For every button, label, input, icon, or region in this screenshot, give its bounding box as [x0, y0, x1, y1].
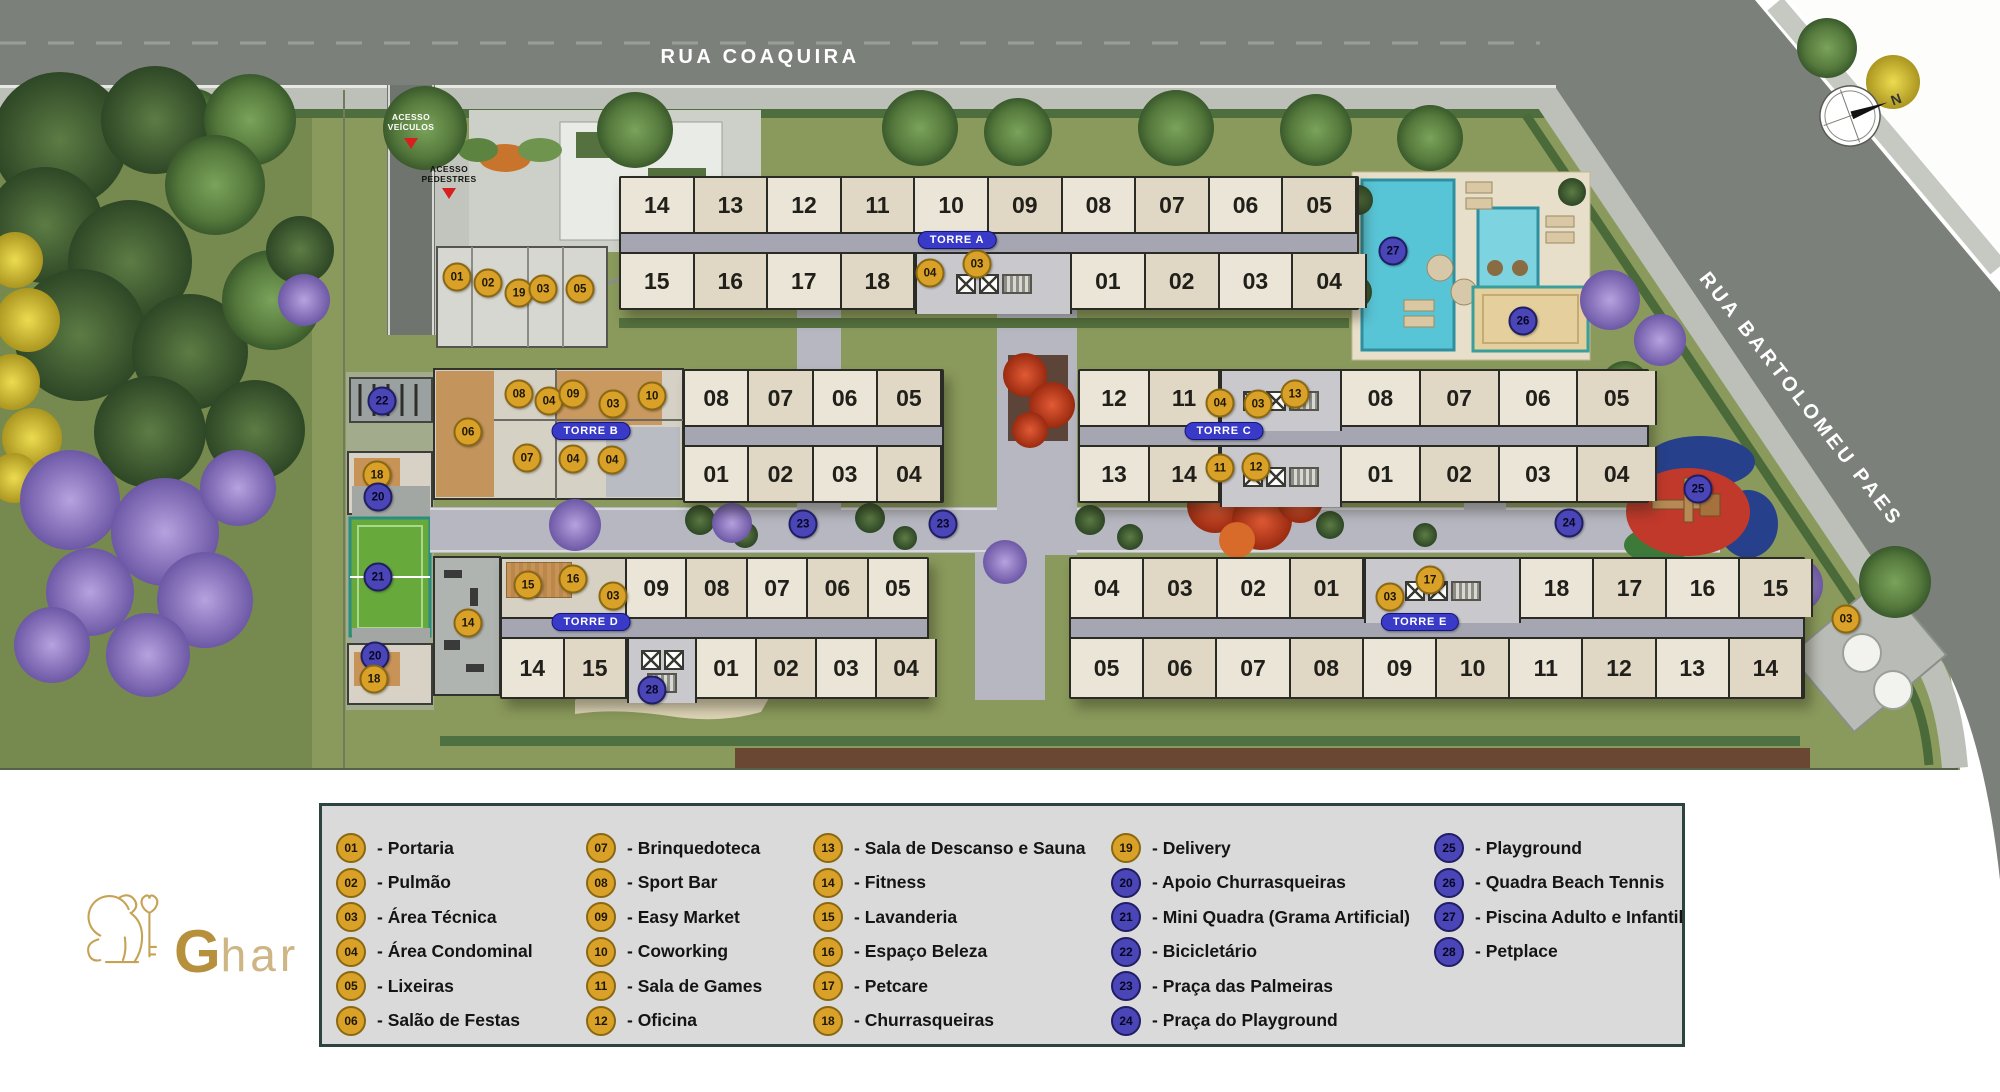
- unit-cell-c-08: 08: [1342, 371, 1421, 425]
- plan-marker-04: 04: [916, 259, 945, 288]
- unit-cell-b-08: 08: [685, 371, 749, 425]
- legend-label: - Mini Quadra (Grama Artificial): [1152, 907, 1410, 928]
- legend-label: - Sport Bar: [627, 872, 717, 893]
- legend-label: - Oficina: [627, 1010, 697, 1031]
- tower-core: [1220, 447, 1342, 507]
- legend-label: - Petplace: [1475, 941, 1558, 962]
- unit-cell-d-14: 14: [502, 639, 565, 697]
- legend-label: - Sala de Descanso e Sauna: [854, 838, 1086, 859]
- unit-row-segment: 0908070605: [627, 559, 929, 617]
- unit-cell-d-05: 05: [869, 559, 929, 617]
- unit-cell-d-03: 03: [817, 639, 877, 697]
- unit-cell-d-02: 02: [757, 639, 817, 697]
- plan-marker-03: 03: [1832, 605, 1861, 634]
- plan-marker-03: 03: [1244, 390, 1273, 419]
- legend-item-19: 19- Delivery: [1111, 831, 1410, 866]
- legend-marker-24: 24: [1111, 1006, 1141, 1036]
- unit-cell-e-17: 17: [1594, 559, 1667, 617]
- legend-label: - Playground: [1475, 838, 1582, 859]
- unit-cell-d-06: 06: [808, 559, 868, 617]
- legend-marker-07: 07: [586, 833, 616, 863]
- unit-cell-e-18: 18: [1521, 559, 1594, 617]
- unit-row-segment: 04030201: [1071, 559, 1364, 617]
- unit-cell-a-11: 11: [842, 178, 916, 232]
- legend: 01- Portaria02- Pulmão03- Área Técnica04…: [319, 803, 1685, 1047]
- unit-cell-b-01: 01: [685, 447, 749, 501]
- access-vehicles-label: ACESSO VEÍCULOS: [380, 112, 442, 132]
- unit-cell-e-12: 12: [1583, 639, 1656, 697]
- legend-label: - Bicicletário: [1152, 941, 1257, 962]
- unit-cell-e-07: 07: [1217, 639, 1290, 697]
- unit-cell-c-06: 06: [1500, 371, 1579, 425]
- legend-item-22: 22- Bicicletário: [1111, 935, 1410, 970]
- unit-row-segment: 15161718: [621, 254, 915, 308]
- legend-item-21: 21- Mini Quadra (Grama Artificial): [1111, 900, 1410, 935]
- legend-column: 07- Brinquedoteca08- Sport Bar09- Easy M…: [586, 831, 762, 1038]
- unit-cell-a-16: 16: [695, 254, 769, 308]
- unit-cell-e-01: 01: [1291, 559, 1364, 617]
- unit-cell-a-10: 10: [915, 178, 989, 232]
- legend-column: 13- Sala de Descanso e Sauna14- Fitness1…: [813, 831, 1086, 1038]
- tower-label-pill-d: TORRE D: [552, 613, 631, 631]
- logo-text: har: [221, 935, 299, 976]
- legend-label: - Delivery: [1152, 838, 1231, 859]
- lion-logo-icon: [70, 880, 174, 976]
- legend-item-05: 05- Lixeiras: [336, 969, 533, 1004]
- legend-label: - Coworking: [627, 941, 728, 962]
- legend-item-20: 20- Apoio Churrasqueiras: [1111, 866, 1410, 901]
- unit-cell-a-13: 13: [695, 178, 769, 232]
- legend-item-11: 11- Sala de Games: [586, 969, 762, 1004]
- unit-cell-e-11: 11: [1510, 639, 1583, 697]
- plan-marker-15: 15: [514, 571, 543, 600]
- unit-row-segment: 01020304: [697, 639, 937, 697]
- unit-cell-e-14: 14: [1730, 639, 1803, 697]
- unit-cell-a-06: 06: [1210, 178, 1284, 232]
- unit-cell-d-09: 09: [627, 559, 687, 617]
- legend-marker-09: 09: [586, 902, 616, 932]
- tower-c: 121108070605131401020304: [1078, 369, 1649, 503]
- legend-column: 25- Playground26- Quadra Beach Tennis27-…: [1434, 831, 1683, 969]
- plan-marker-10: 10: [638, 382, 667, 411]
- unit-cell-b-04: 04: [878, 447, 942, 501]
- plan-marker-21: 21: [364, 563, 393, 592]
- unit-cell-e-04: 04: [1071, 559, 1144, 617]
- legend-item-07: 07- Brinquedoteca: [586, 831, 762, 866]
- legend-marker-13: 13: [813, 833, 843, 863]
- unit-cell-c-03: 03: [1500, 447, 1579, 501]
- unit-cell-a-02: 02: [1146, 254, 1220, 308]
- legend-label: - Apoio Churrasqueiras: [1152, 872, 1346, 893]
- legend-item-15: 15- Lavanderia: [813, 900, 1086, 935]
- access-pedestrians-arrow-icon: [442, 188, 456, 199]
- plan-marker-24: 24: [1555, 509, 1584, 538]
- plan-marker-14: 14: [454, 609, 483, 638]
- legend-label: - Área Condominal: [377, 941, 533, 962]
- legend-marker-23: 23: [1111, 971, 1141, 1001]
- legend-marker-14: 14: [813, 868, 843, 898]
- legend-label: - Sala de Games: [627, 976, 762, 997]
- legend-item-16: 16- Espaço Beleza: [813, 935, 1086, 970]
- unit-cell-e-08: 08: [1291, 639, 1364, 697]
- unit-cell-e-09: 09: [1364, 639, 1437, 697]
- legend-item-26: 26- Quadra Beach Tennis: [1434, 866, 1683, 901]
- unit-cell-e-10: 10: [1437, 639, 1510, 697]
- plan-marker-11: 11: [1206, 454, 1235, 483]
- legend-item-14: 14- Fitness: [813, 866, 1086, 901]
- unit-cell-b-06: 06: [814, 371, 878, 425]
- unit-row-segment: 01020304: [1072, 254, 1367, 308]
- legend-column: 01- Portaria02- Pulmão03- Área Técnica04…: [336, 831, 533, 1038]
- legend-label: - Easy Market: [627, 907, 740, 928]
- legend-column: 19- Delivery20- Apoio Churrasqueiras21- …: [1111, 831, 1410, 1038]
- plan-marker-23: 23: [789, 510, 818, 539]
- access-vehicles-arrow-icon: [404, 138, 418, 149]
- unit-row-segment: 1415: [502, 639, 627, 697]
- plan-marker-03: 03: [599, 582, 628, 611]
- unit-cell-b-07: 07: [749, 371, 813, 425]
- access-pedestrians-label: ACESSO PEDESTRES: [420, 164, 478, 184]
- unit-cell-a-14: 14: [621, 178, 695, 232]
- unit-cell-e-03: 03: [1144, 559, 1217, 617]
- legend-label: - Praça do Playground: [1152, 1010, 1338, 1031]
- tower-corridor: [685, 425, 942, 447]
- legend-label: - Brinquedoteca: [627, 838, 760, 859]
- unit-cell-a-12: 12: [768, 178, 842, 232]
- unit-cell-b-05: 05: [878, 371, 942, 425]
- legend-marker-11: 11: [586, 971, 616, 1001]
- plan-marker-27: 27: [1379, 237, 1408, 266]
- legend-marker-18: 18: [813, 1006, 843, 1036]
- legend-label: - Pulmão: [377, 872, 451, 893]
- unit-cell-a-17: 17: [768, 254, 842, 308]
- tower-label-pill-a: TORRE A: [918, 231, 997, 249]
- legend-item-09: 09- Easy Market: [586, 900, 762, 935]
- legend-marker-20: 20: [1111, 868, 1141, 898]
- plan-marker-03: 03: [1376, 583, 1405, 612]
- unit-row-segment: 01020304: [685, 447, 942, 501]
- unit-cell-d-04: 04: [877, 639, 937, 697]
- plan-marker-12: 12: [1242, 453, 1271, 482]
- unit-row-segment: 14131211100908070605: [621, 178, 1357, 232]
- tower-label-pill-b: TORRE B: [552, 422, 631, 440]
- legend-marker-27: 27: [1434, 902, 1464, 932]
- unit-cell-a-18: 18: [842, 254, 916, 308]
- legend-marker-17: 17: [813, 971, 843, 1001]
- plan-marker-01: 01: [443, 263, 472, 292]
- plan-marker-22: 22: [368, 387, 397, 416]
- stairs-icon: [1451, 581, 1481, 601]
- legend-marker-22: 22: [1111, 937, 1141, 967]
- legend-label: - Fitness: [854, 872, 926, 893]
- unit-cell-d-01: 01: [697, 639, 757, 697]
- legend-item-12: 12- Oficina: [586, 1004, 762, 1039]
- unit-cell-a-03: 03: [1220, 254, 1294, 308]
- svg-text:N: N: [1889, 90, 1904, 108]
- legend-marker-15: 15: [813, 902, 843, 932]
- plan-marker-04: 04: [598, 446, 627, 475]
- plan-marker-28: 28: [638, 676, 667, 705]
- legend-item-28: 28- Petplace: [1434, 935, 1683, 970]
- plan-marker-18: 18: [360, 665, 389, 694]
- unit-cell-c-02: 02: [1421, 447, 1500, 501]
- unit-row-segment: 18171615: [1521, 559, 1813, 617]
- legend-item-03: 03- Área Técnica: [336, 900, 533, 935]
- plan-marker-07: 07: [513, 444, 542, 473]
- legend-marker-21: 21: [1111, 902, 1141, 932]
- legend-item-13: 13- Sala de Descanso e Sauna: [813, 831, 1086, 866]
- legend-item-25: 25- Playground: [1434, 831, 1683, 866]
- plan-marker-08: 08: [505, 380, 534, 409]
- legend-label: - Área Técnica: [377, 907, 497, 928]
- elevator-icon: [664, 650, 684, 670]
- unit-cell-a-05: 05: [1283, 178, 1357, 232]
- unit-cell-c-05: 05: [1578, 371, 1657, 425]
- legend-marker-28: 28: [1434, 937, 1464, 967]
- legend-label: - Quadra Beach Tennis: [1475, 872, 1664, 893]
- unit-cell-b-03: 03: [814, 447, 878, 501]
- legend-item-17: 17- Petcare: [813, 969, 1086, 1004]
- unit-cell-d-08: 08: [687, 559, 747, 617]
- legend-item-18: 18- Churrasqueiras: [813, 1004, 1086, 1039]
- unit-cell-a-15: 15: [621, 254, 695, 308]
- unit-cell-a-01: 01: [1072, 254, 1146, 308]
- street-label-top: RUA COAQUIRA: [660, 46, 860, 69]
- tower-label-pill-c: TORRE C: [1185, 422, 1264, 440]
- legend-marker-08: 08: [586, 868, 616, 898]
- unit-cell-a-04: 04: [1293, 254, 1367, 308]
- unit-cell-e-06: 06: [1144, 639, 1217, 697]
- legend-item-23: 23- Praça das Palmeiras: [1111, 969, 1410, 1004]
- legend-label: - Espaço Beleza: [854, 941, 987, 962]
- legend-item-10: 10- Coworking: [586, 935, 762, 970]
- unit-cell-a-09: 09: [989, 178, 1063, 232]
- unit-cell-c-01: 01: [1342, 447, 1421, 501]
- unit-cell-a-07: 07: [1136, 178, 1210, 232]
- plan-marker-17: 17: [1416, 566, 1445, 595]
- brand-logo: Ghar: [70, 880, 299, 976]
- legend-item-27: 27- Piscina Adulto e Infantil: [1434, 900, 1683, 935]
- plan-marker-03: 03: [599, 390, 628, 419]
- legend-label: - Salão de Festas: [377, 1010, 520, 1031]
- legend-item-06: 06- Salão de Festas: [336, 1004, 533, 1039]
- compass-icon: N: [1806, 72, 1906, 164]
- legend-marker-16: 16: [813, 937, 843, 967]
- unit-cell-a-08: 08: [1063, 178, 1137, 232]
- legend-marker-10: 10: [586, 937, 616, 967]
- legend-marker-01: 01: [336, 833, 366, 863]
- plan-marker-25: 25: [1684, 475, 1713, 504]
- plan-marker-04: 04: [1206, 389, 1235, 418]
- legend-label: - Praça das Palmeiras: [1152, 976, 1333, 997]
- legend-label: - Petcare: [854, 976, 928, 997]
- unit-cell-e-15: 15: [1740, 559, 1813, 617]
- tower-label-pill-e: TORRE E: [1381, 613, 1459, 631]
- legend-item-01: 01- Portaria: [336, 831, 533, 866]
- legend-label: - Piscina Adulto e Infantil: [1475, 907, 1683, 928]
- legend-marker-04: 04: [336, 937, 366, 967]
- legend-marker-03: 03: [336, 902, 366, 932]
- plan-marker-02: 02: [474, 269, 503, 298]
- legend-label: - Lavanderia: [854, 907, 957, 928]
- legend-label: - Churrasqueiras: [854, 1010, 994, 1031]
- unit-row-segment: 1211: [1080, 371, 1220, 425]
- plan-marker-16: 16: [559, 565, 588, 594]
- unit-cell-b-02: 02: [749, 447, 813, 501]
- stairs-icon: [1002, 274, 1032, 294]
- plan-marker-06: 06: [454, 418, 483, 447]
- unit-cell-e-13: 13: [1657, 639, 1730, 697]
- unit-cell-c-12: 12: [1080, 371, 1150, 425]
- unit-cell-e-05: 05: [1071, 639, 1144, 697]
- legend-item-04: 04- Área Condominal: [336, 935, 533, 970]
- legend-item-02: 02- Pulmão: [336, 866, 533, 901]
- unit-row-segment: 08070605: [1342, 371, 1657, 425]
- elevator-icon: [641, 650, 661, 670]
- plan-marker-23: 23: [929, 510, 958, 539]
- legend-marker-26: 26: [1434, 868, 1464, 898]
- legend-item-24: 24- Praça do Playground: [1111, 1004, 1410, 1039]
- legend-marker-02: 02: [336, 868, 366, 898]
- plan-marker-04: 04: [559, 445, 588, 474]
- unit-cell-d-15: 15: [565, 639, 628, 697]
- stairs-icon: [1289, 467, 1319, 487]
- legend-label: - Portaria: [377, 838, 454, 859]
- unit-row-segment: 05060708091011121314: [1071, 639, 1803, 697]
- unit-cell-c-07: 07: [1421, 371, 1500, 425]
- plan-marker-03: 03: [529, 275, 558, 304]
- unit-cell-e-02: 02: [1218, 559, 1291, 617]
- unit-row-segment: 01020304: [1342, 447, 1657, 501]
- legend-marker-06: 06: [336, 1006, 366, 1036]
- plan-marker-09: 09: [559, 380, 588, 409]
- legend-marker-19: 19: [1111, 833, 1141, 863]
- plan-marker-13: 13: [1281, 380, 1310, 409]
- unit-row-segment: 1314: [1080, 447, 1220, 501]
- legend-item-08: 08- Sport Bar: [586, 866, 762, 901]
- legend-marker-05: 05: [336, 971, 366, 1001]
- site-plan-canvas: RUA COAQUIRA RUA BARTOLOMEU PAES ACESSO …: [0, 0, 2000, 1092]
- plan-marker-03: 03: [963, 250, 992, 279]
- tower-corridor: [1080, 425, 1647, 447]
- plan-marker-05: 05: [566, 275, 595, 304]
- unit-cell-c-13: 13: [1080, 447, 1150, 501]
- legend-marker-12: 12: [586, 1006, 616, 1036]
- tower-b: 0807060501020304: [683, 369, 944, 503]
- logo-initial: G: [174, 928, 221, 976]
- unit-row-segment: 08070605: [685, 371, 942, 425]
- unit-cell-d-07: 07: [748, 559, 808, 617]
- plan-marker-26: 26: [1509, 307, 1538, 336]
- unit-cell-e-16: 16: [1667, 559, 1740, 617]
- plan-marker-20: 20: [364, 483, 393, 512]
- legend-marker-25: 25: [1434, 833, 1464, 863]
- unit-cell-c-04: 04: [1578, 447, 1657, 501]
- legend-label: - Lixeiras: [377, 976, 454, 997]
